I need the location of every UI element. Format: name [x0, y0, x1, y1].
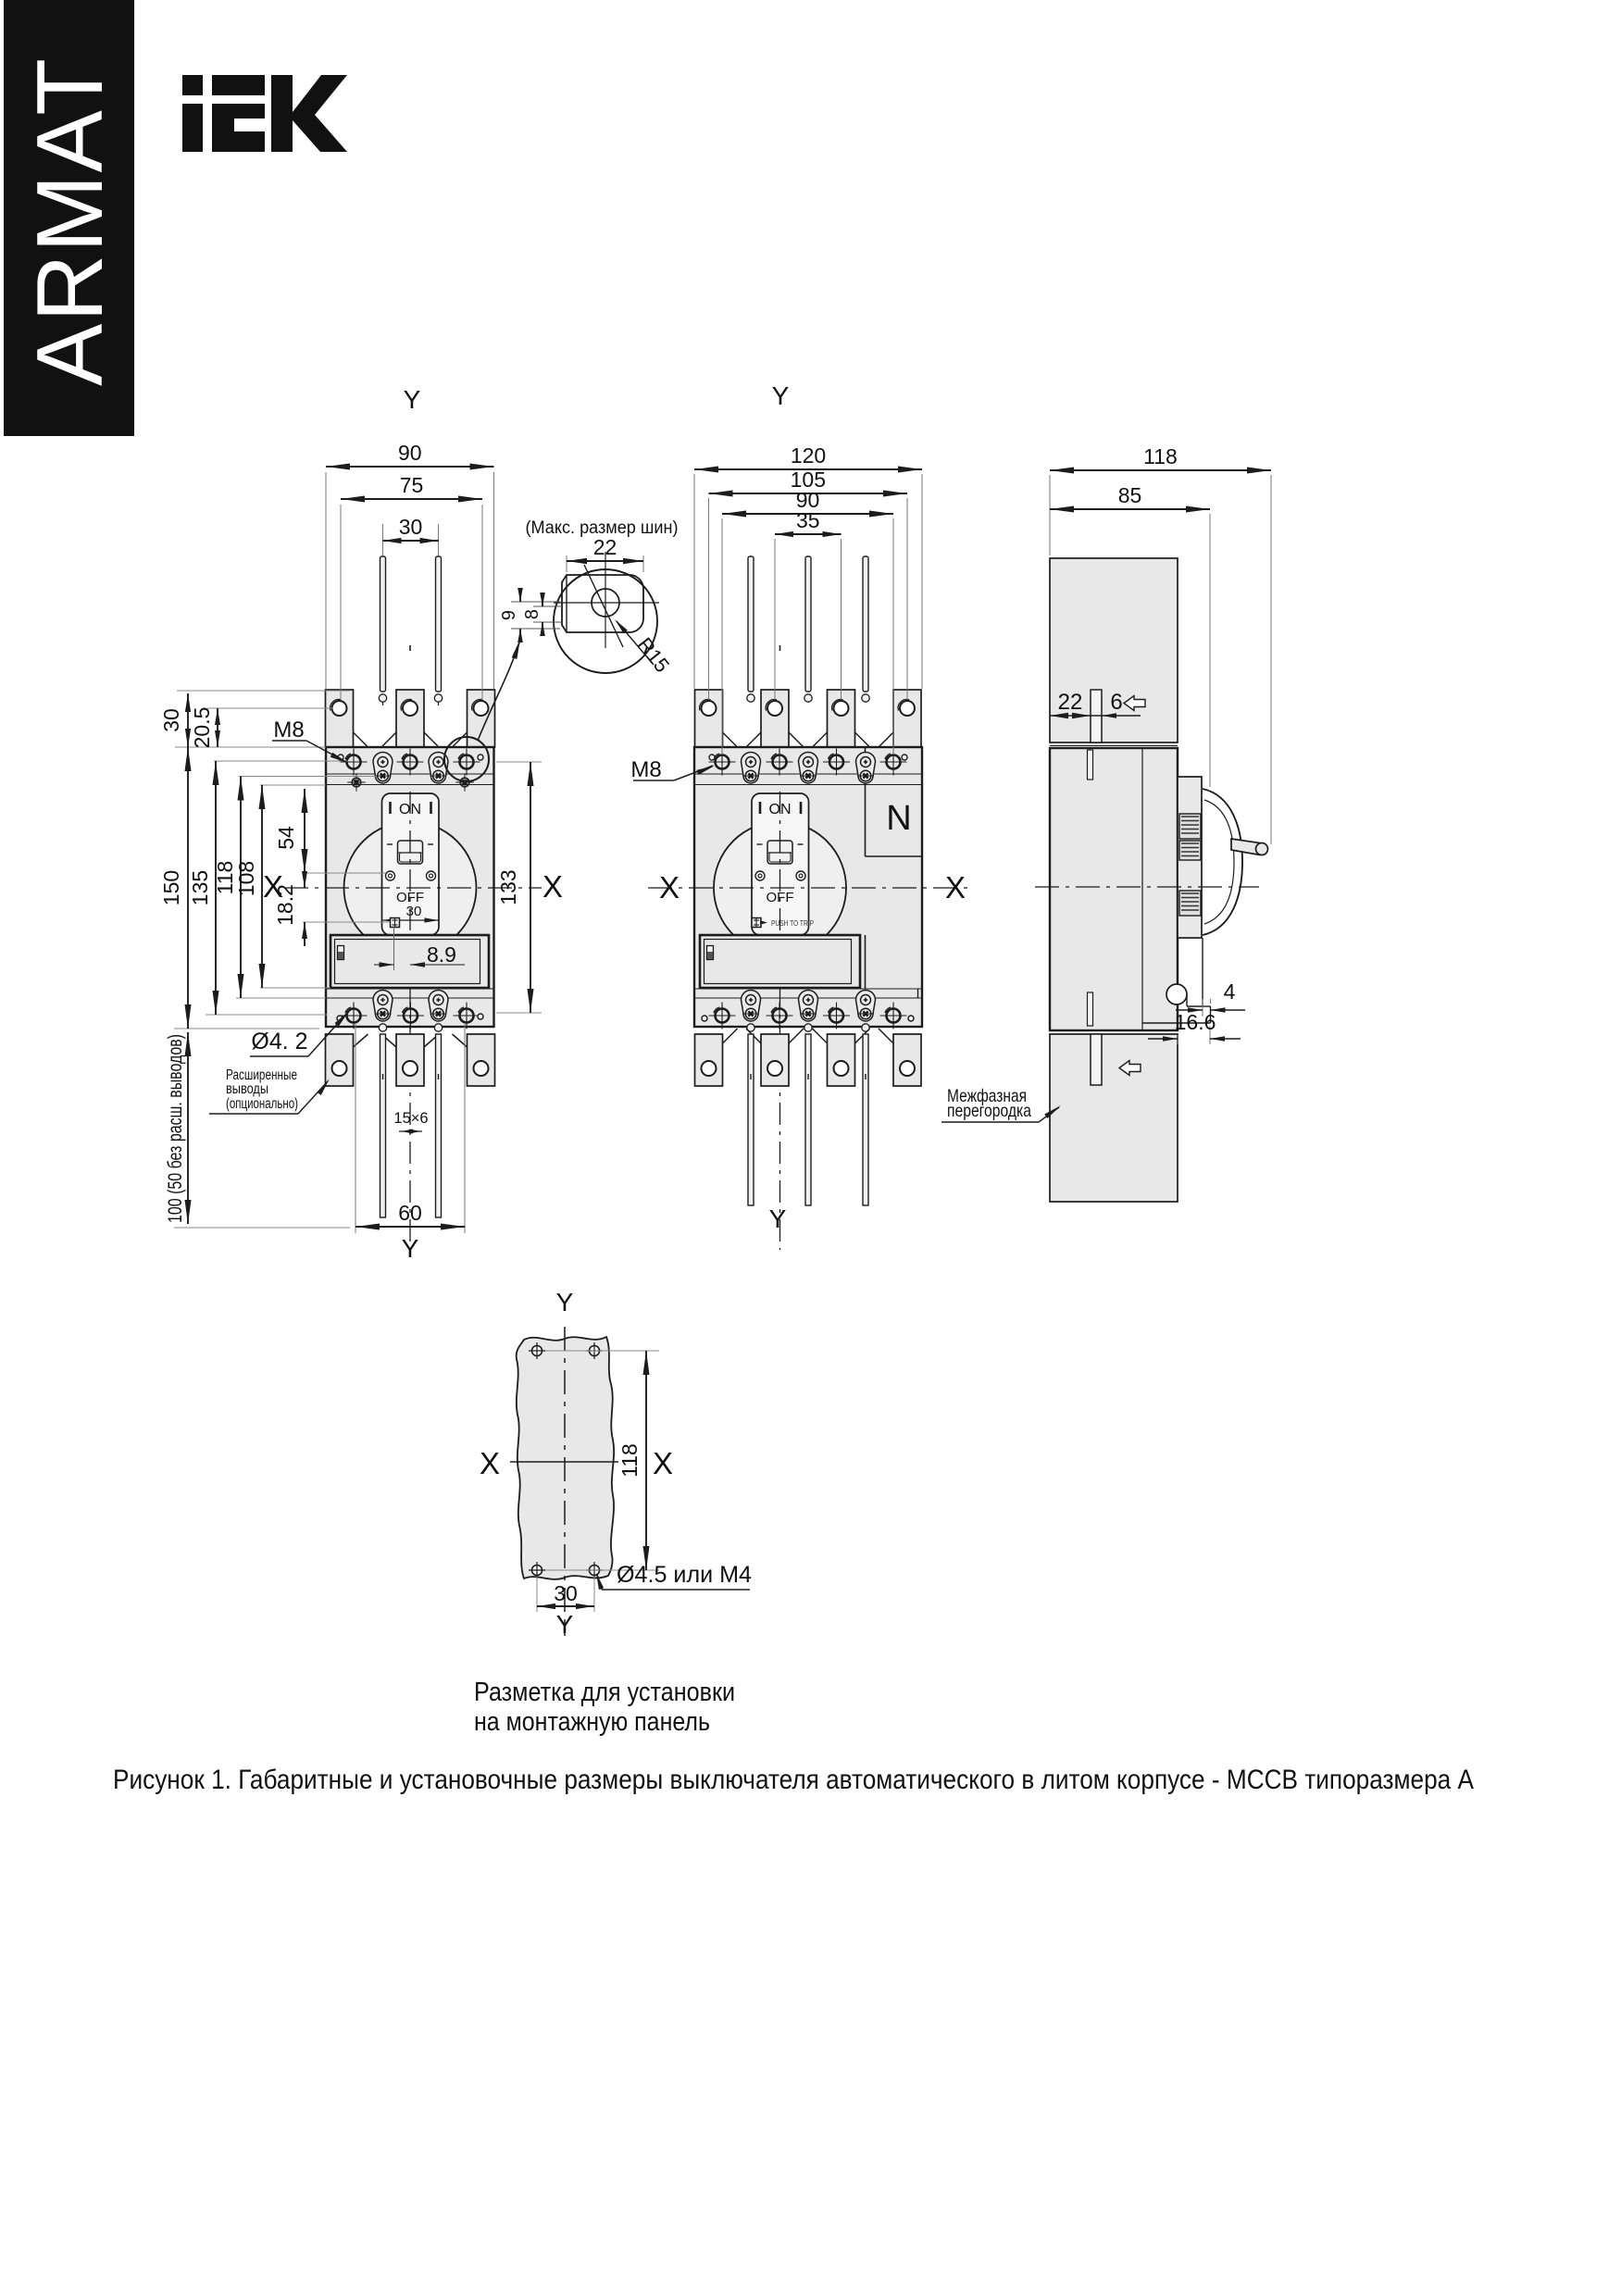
svg-text:(опционально): (опционально) [226, 1096, 298, 1112]
svg-text:30: 30 [399, 515, 423, 539]
svg-text:108: 108 [234, 861, 258, 896]
svg-text:150: 150 [159, 870, 183, 905]
svg-text:30: 30 [554, 1581, 578, 1605]
svg-text:90: 90 [398, 441, 422, 465]
svg-text:Y: Y [772, 381, 790, 410]
svg-text:100 (50 без расш. выводов): 100 (50 без расш. выводов) [165, 1034, 186, 1223]
svg-text:6: 6 [1110, 690, 1122, 715]
svg-text:133: 133 [496, 869, 520, 905]
svg-text:35: 35 [796, 508, 820, 532]
svg-text:16.6: 16.6 [1175, 1010, 1216, 1034]
svg-text:18.2: 18.2 [273, 884, 297, 926]
svg-text:4: 4 [1224, 980, 1236, 1004]
svg-text:8: 8 [522, 609, 542, 619]
svg-text:X: X [542, 869, 563, 904]
svg-text:30: 30 [406, 904, 422, 919]
svg-text:85: 85 [1118, 483, 1142, 507]
svg-text:Рисунок 1. Габаритные и устано: Рисунок 1. Габаритные и установочные раз… [113, 1765, 1474, 1795]
svg-text:M8: M8 [273, 717, 304, 742]
svg-text:X: X [659, 870, 680, 905]
svg-text:118: 118 [1143, 444, 1178, 468]
svg-text:30: 30 [159, 708, 183, 732]
svg-text:Разметка для установки: Разметка для установки [474, 1678, 735, 1707]
svg-text:N: N [886, 799, 911, 838]
svg-text:9: 9 [499, 610, 519, 620]
svg-text:135: 135 [188, 870, 212, 905]
svg-text:22: 22 [1058, 690, 1083, 715]
svg-text:Y: Y [556, 1288, 574, 1316]
svg-text:на монтажную панель: на монтажную панель [474, 1707, 710, 1737]
svg-text:перегородка: перегородка [947, 1101, 1031, 1121]
svg-text:X: X [653, 1446, 673, 1480]
svg-text:8.9: 8.9 [427, 942, 456, 967]
svg-text:Ø4.5 или М4: Ø4.5 или М4 [617, 1562, 752, 1588]
svg-text:OFF: OFF [767, 890, 794, 905]
svg-text:PUSH TO TRIP: PUSH TO TRIP [771, 918, 814, 928]
svg-text:54: 54 [274, 826, 298, 850]
svg-text:выводы: выводы [226, 1081, 268, 1097]
svg-text:75: 75 [400, 473, 424, 497]
svg-text:60: 60 [398, 1201, 422, 1225]
svg-text:118: 118 [617, 1443, 642, 1478]
svg-text:15×6: 15×6 [393, 1110, 428, 1127]
svg-text:Y: Y [402, 1234, 419, 1263]
svg-text:M8: M8 [630, 757, 661, 782]
svg-text:120: 120 [791, 443, 826, 468]
svg-text:20.5: 20.5 [190, 707, 214, 749]
svg-text:22: 22 [593, 535, 617, 559]
svg-text:Y: Y [404, 385, 421, 414]
svg-text:X: X [480, 1446, 500, 1480]
svg-text:X: X [945, 870, 966, 905]
svg-text:Ø4. 2: Ø4. 2 [251, 1029, 307, 1054]
svg-text:ARMAT: ARMAT [19, 56, 122, 386]
svg-text:Y: Y [769, 1204, 787, 1233]
